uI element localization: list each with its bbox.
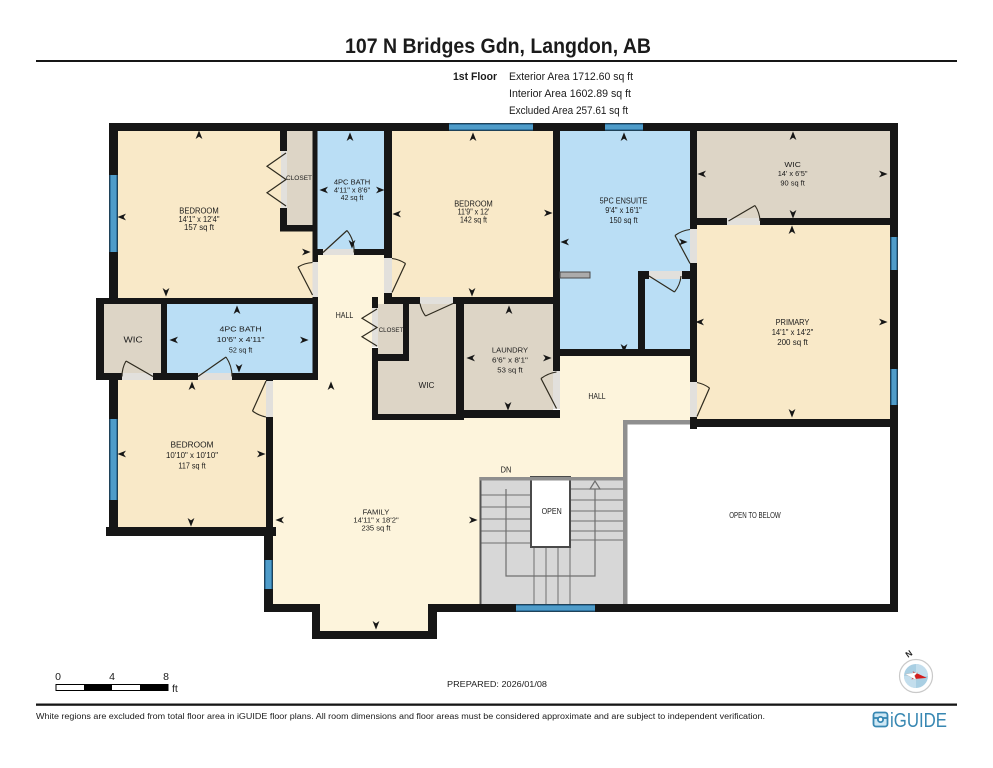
svg-text:52 sq ft: 52 sq ft bbox=[229, 345, 253, 354]
svg-text:WIC: WIC bbox=[124, 334, 143, 344]
svg-text:OPEN TO BELOW: OPEN TO BELOW bbox=[729, 511, 781, 520]
svg-text:107 N Bridges Gdn, Langdon, AB: 107 N Bridges Gdn, Langdon, AB bbox=[345, 34, 651, 58]
svg-text:WIC: WIC bbox=[784, 160, 801, 169]
svg-text:235 sq ft: 235 sq ft bbox=[362, 526, 391, 533]
svg-text:0: 0 bbox=[55, 671, 61, 683]
svg-text:8: 8 bbox=[163, 671, 169, 683]
svg-text:4'11" x 8'6": 4'11" x 8'6" bbox=[334, 187, 371, 194]
svg-text:157 sq ft: 157 sq ft bbox=[184, 222, 215, 232]
svg-text:PRIMARY: PRIMARY bbox=[776, 317, 810, 327]
svg-text:14'11" x 18'2": 14'11" x 18'2" bbox=[353, 518, 399, 525]
svg-text:10'6" x 4'11": 10'6" x 4'11" bbox=[217, 335, 265, 344]
svg-text:90 sq ft: 90 sq ft bbox=[780, 178, 805, 187]
svg-text:BEDROOM: BEDROOM bbox=[171, 440, 214, 450]
svg-text:iGUIDE: iGUIDE bbox=[890, 709, 947, 732]
svg-text:Excluded Area 257.61 sq ft: Excluded Area 257.61 sq ft bbox=[509, 105, 628, 117]
svg-text:FAMILY: FAMILY bbox=[363, 510, 390, 517]
svg-text:5PC ENSUITE: 5PC ENSUITE bbox=[600, 196, 648, 206]
svg-text:4PC BATH: 4PC BATH bbox=[220, 324, 262, 333]
svg-text:ft: ft bbox=[172, 683, 178, 695]
svg-text:Interior Area 1602.89 sq ft: Interior Area 1602.89 sq ft bbox=[509, 88, 631, 100]
svg-text:150 sq ft: 150 sq ft bbox=[609, 215, 638, 225]
svg-text:14' x 6'5": 14' x 6'5" bbox=[778, 169, 808, 178]
svg-text:10'10" x 10'10": 10'10" x 10'10" bbox=[166, 450, 218, 460]
svg-text:42 sq ft: 42 sq ft bbox=[341, 195, 364, 202]
svg-text:1st Floor: 1st Floor bbox=[453, 71, 498, 83]
svg-text:HALL: HALL bbox=[588, 391, 605, 401]
svg-text:4: 4 bbox=[109, 671, 115, 683]
svg-text:4PC BATH: 4PC BATH bbox=[334, 179, 370, 186]
svg-text:PREPARED: 2026/01/08: PREPARED: 2026/01/08 bbox=[447, 679, 547, 689]
svg-text:9'4" x 16'1": 9'4" x 16'1" bbox=[605, 205, 642, 215]
svg-text:200 sq ft: 200 sq ft bbox=[777, 337, 808, 347]
svg-text:OPEN: OPEN bbox=[542, 506, 562, 516]
svg-text:14'1" x 14'2": 14'1" x 14'2" bbox=[772, 327, 814, 337]
svg-text:DN: DN bbox=[501, 464, 512, 474]
svg-text:CLOSET: CLOSET bbox=[286, 175, 312, 182]
svg-text:HALL: HALL bbox=[336, 310, 354, 320]
svg-text:LAUNDRY: LAUNDRY bbox=[492, 346, 528, 355]
svg-text:117 sq ft: 117 sq ft bbox=[178, 461, 206, 471]
svg-text:CLOSET: CLOSET bbox=[379, 327, 404, 334]
svg-text:6'6" x 8'1": 6'6" x 8'1" bbox=[492, 356, 528, 365]
svg-text:142 sq ft: 142 sq ft bbox=[460, 214, 488, 224]
svg-text:53 sq ft: 53 sq ft bbox=[497, 366, 523, 375]
svg-text:Exterior Area 1712.60 sq ft: Exterior Area 1712.60 sq ft bbox=[509, 71, 633, 83]
svg-text:WIC: WIC bbox=[419, 380, 435, 390]
svg-text:White regions are excluded fro: White regions are excluded from total fl… bbox=[36, 712, 765, 721]
